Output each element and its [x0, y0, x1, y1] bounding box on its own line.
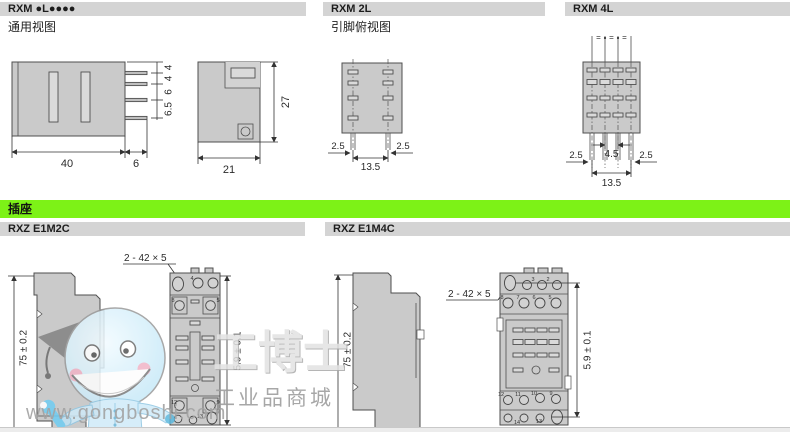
rxze1m4c-front-body [497, 268, 571, 425]
terminal-number: 4 [190, 276, 193, 282]
terminal-number: 6 [532, 295, 535, 301]
watermark-tagline: 工业品商城 [214, 382, 334, 412]
terminal-number: 2 [546, 277, 549, 283]
socket-section-band: 插座 [0, 200, 790, 218]
dim-rxm4l-left: 2.5 [569, 150, 582, 161]
terminal-number: 10 [531, 391, 537, 397]
rxze1m4c-slot-label: 2 - 42 × 5 [446, 285, 508, 300]
rxm2l-dimensions: 2.5 2.5 13.5 [328, 141, 413, 173]
equal-mark-2: = [609, 33, 614, 42]
terminal-number: 12 [498, 392, 504, 398]
terminal-number: 5 [548, 295, 551, 301]
relay-side-body [198, 62, 260, 142]
terminal-number: 3 [531, 277, 534, 283]
watermark-url: www.gongboshi.com [26, 402, 226, 425]
rxze1m4c-front-drawing: 2 - 42 × 5 [440, 248, 610, 432]
dim-pitch-3: 6 [164, 89, 175, 95]
subtitle-pin-view: 引脚俯视图 [331, 18, 391, 35]
watermark-brand: 工博士 [213, 316, 348, 381]
terminal-number: 9 [549, 391, 552, 397]
header-rxm-2l: RXM 2L [323, 2, 545, 16]
terminal-number: 11 [515, 392, 521, 398]
terminal-number: 13 [536, 419, 542, 425]
dim-side-height: 27 [280, 96, 292, 108]
terminal-number: 8 [500, 295, 503, 301]
rxze1m4c-side-profile [353, 273, 424, 432]
header-rxm-l: RXM ●L●●●● [0, 2, 306, 16]
dim-rxm4l-span: 13.5 [602, 178, 622, 189]
dim-side-depth: 21 [223, 164, 235, 176]
relay-side-drawing: 27 21 [185, 46, 305, 181]
rxm2l-body [342, 59, 402, 150]
terminal-number: 14 [514, 420, 520, 426]
rxm4l-pin-drawing: = = = [558, 28, 713, 193]
dim-rxm4l-right: 2.5 [639, 150, 652, 161]
dim-rxm2l-right: 2.5 [396, 141, 409, 152]
rxm2l-pin-drawing: 2.5 2.5 13.5 [325, 46, 450, 181]
subtitle-general-view: 通用视图 [8, 18, 56, 35]
header-rxm-4l: RXM 4L [565, 2, 790, 16]
dim-rxm4l-center: 4.5 [605, 149, 619, 160]
rxm4l-equal-marks: = = = [592, 33, 631, 62]
dim-rxm2l-left: 2.5 [331, 141, 344, 152]
equal-mark-3: = [622, 33, 627, 42]
header-rxz-e1m2c: RXZ E1M2C [0, 222, 305, 236]
bottom-divider [0, 427, 790, 432]
rxm4l-dimensions: 4.5 2.5 2.5 13.5 [566, 133, 657, 189]
dim-pitch-1: 4 [164, 64, 175, 70]
equal-mark-1: = [596, 33, 601, 42]
datasheet-page: RXM ●L●●●● RXM 2L RXM 4L 通用视图 引脚俯视图 4 4 … [0, 0, 790, 432]
slot-dim-label: 2 - 42 × 5 [448, 289, 491, 300]
dim-pitch-2: 4 [164, 75, 175, 81]
relay-front-drawing: 4 4 6 6.5 40 6 [5, 46, 175, 176]
dim-pin-length: 6 [133, 158, 139, 170]
terminal-number: 7 [516, 295, 519, 301]
header-rxz-e1m4c: RXZ E1M4C [325, 222, 790, 236]
slot-dim-label: 2 - 42 × 5 [124, 253, 167, 264]
dim-rxm2l-span: 13.5 [361, 162, 381, 173]
relay-body [12, 62, 147, 136]
dim-body-width: 40 [61, 158, 73, 170]
dim-pin-window: 5.9 ± 0.1 [583, 330, 594, 369]
dim-pitch-4: 6.5 [164, 102, 175, 116]
